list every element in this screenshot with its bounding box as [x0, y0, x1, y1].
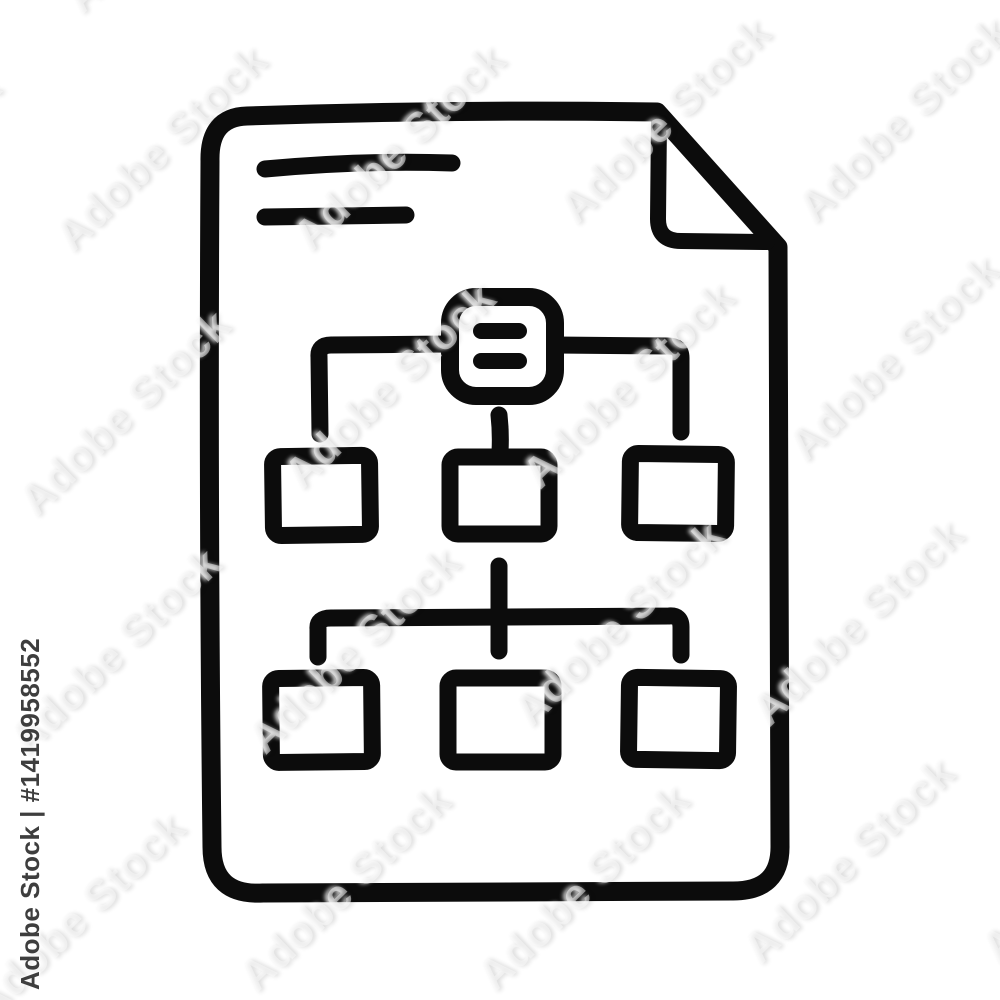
flowchart-root-node	[450, 297, 555, 396]
header-line-1	[265, 162, 452, 169]
tier1-connector-stub	[499, 415, 500, 452]
tier1-box-right	[630, 453, 727, 533]
tier1-connector-left	[319, 344, 450, 434]
stage: Adobe StockAdobe StockAdobe StockAdobe S…	[0, 0, 1000, 1000]
tier1-box-left	[272, 455, 370, 535]
tier2-box-middle	[448, 678, 553, 762]
tier2-box-left	[271, 677, 373, 762]
page-outline	[209, 111, 780, 893]
header-line-2	[265, 215, 406, 217]
tier1-box-middle	[450, 457, 549, 534]
tier2-box-right	[628, 677, 728, 760]
document-flowchart-icon	[0, 0, 1000, 1000]
stock-id-watermark: Adobe Stock | #1419958552	[15, 638, 46, 990]
tier1-connector-right	[555, 345, 681, 432]
